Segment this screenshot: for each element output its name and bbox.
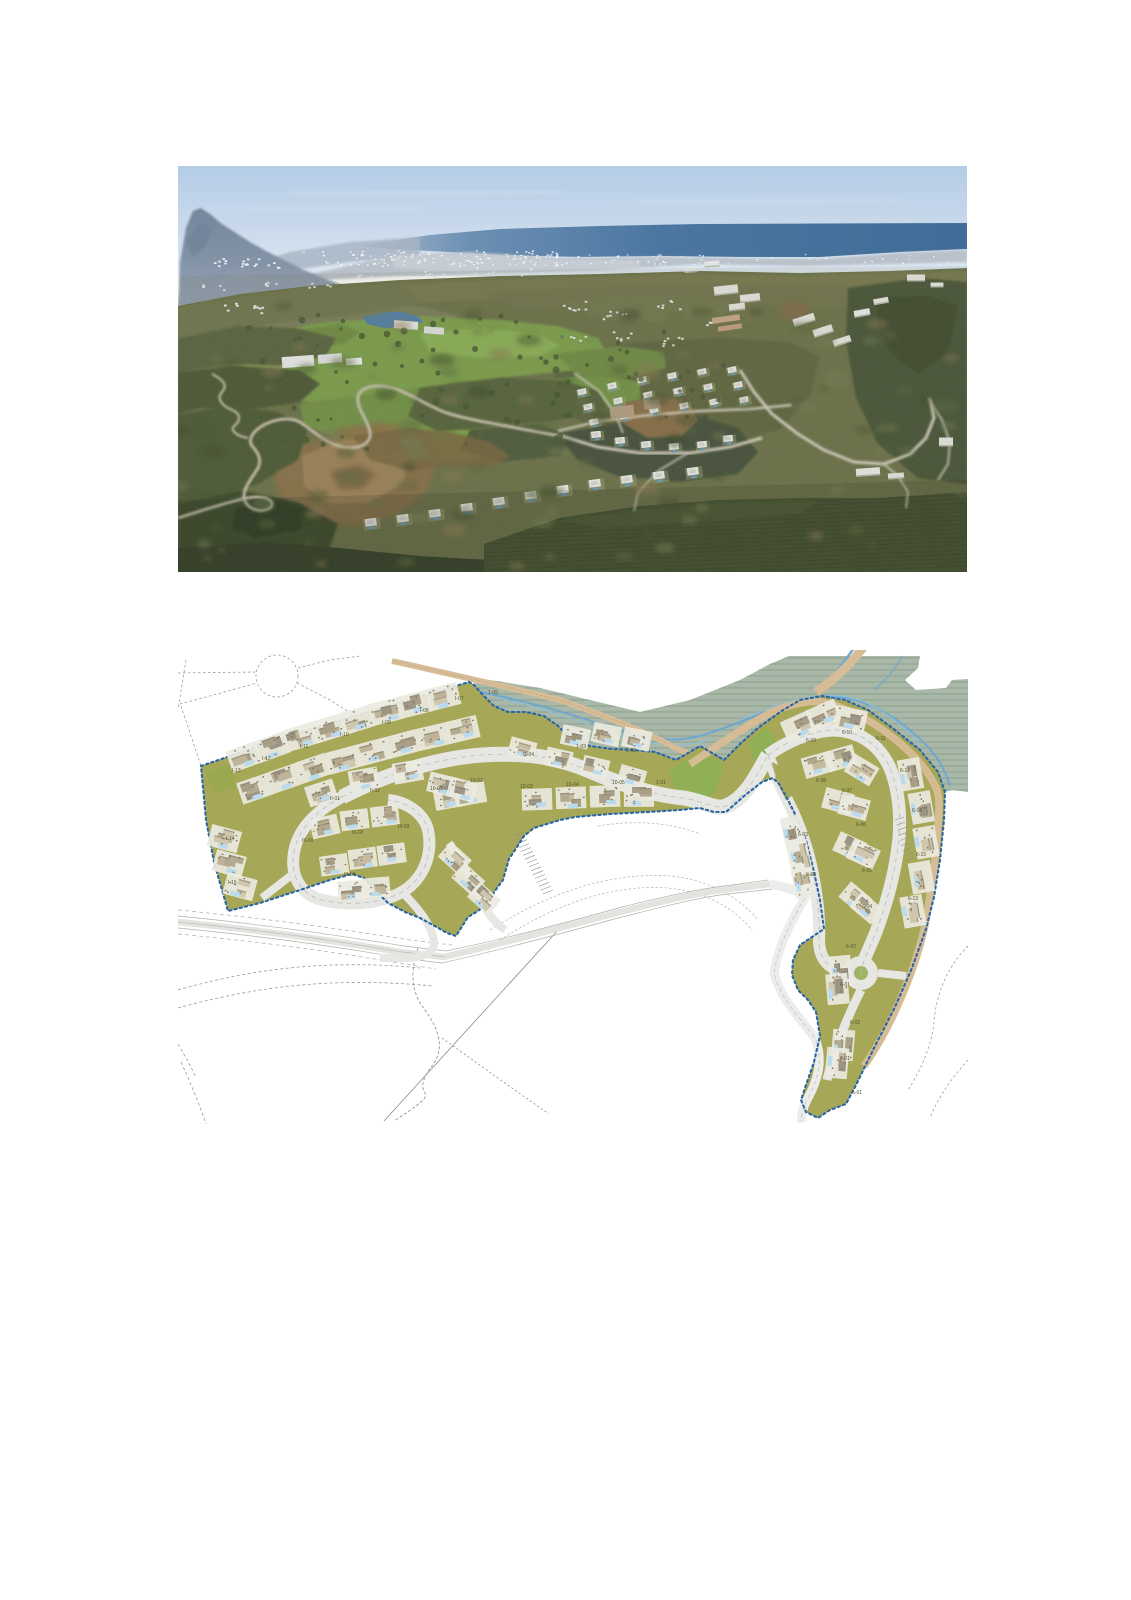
svg-text:III-01: III-01 [302,838,314,844]
svg-text:III-04: III-04 [344,872,356,878]
svg-text:6-04: 6-04 [862,904,872,910]
svg-text:1-02: 1-02 [626,748,636,754]
svg-text:I-09: I-09 [382,720,391,726]
svg-text:III-02: III-02 [352,830,364,836]
svg-text:10-03: 10-03 [520,784,533,790]
svg-text:I-08: I-08 [420,708,429,714]
svg-text:I-14: I-14 [226,836,235,842]
svg-text:6-08: 6-08 [816,778,826,784]
svg-text:II-02: II-02 [370,788,380,794]
svg-text:I-10: I-10 [340,732,349,738]
svg-text:6-11: 6-11 [876,736,886,742]
svg-text:6-09: 6-09 [806,738,816,744]
svg-text:6-12: 6-12 [900,768,910,774]
svg-text:1-04: 1-04 [524,752,534,758]
svg-text:1-05: 1-05 [488,690,498,696]
svg-text:10-05: 10-05 [612,780,625,786]
svg-text:6-02: 6-02 [850,1020,860,1026]
svg-text:III-03: III-03 [398,824,410,830]
svg-text:6-01: 6-01 [840,982,850,988]
svg-text:II-03: II-03 [806,872,816,878]
svg-text:I-12: I-12 [262,756,271,762]
svg-text:6-03: 6-03 [798,832,808,838]
svg-text:6-06: 6-06 [856,822,866,828]
svg-text:6-07: 6-07 [842,788,852,794]
svg-text:6-01: 6-01 [852,1090,862,1096]
svg-text:10-01: 10-01 [430,786,443,792]
svg-text:6-13: 6-13 [908,896,918,902]
svg-text:1-01: 1-01 [656,780,666,786]
svg-text:I-13: I-13 [232,768,241,774]
svg-text:6-10: 6-10 [842,730,852,736]
svg-text:II-01: II-01 [330,796,340,802]
svg-text:I-11: I-11 [300,744,308,750]
svg-text:6-05: 6-05 [862,868,872,874]
svg-text:6-14: 6-14 [912,808,922,814]
svg-text:6-01: 6-01 [840,1056,850,1062]
svg-text:10-02: 10-02 [470,778,483,784]
svg-text:6-15: 6-15 [916,852,926,858]
svg-text:I-15: I-15 [228,880,237,886]
svg-text:1-03: 1-03 [576,744,586,750]
svg-text:I-07: I-07 [455,696,464,702]
svg-text:6-02: 6-02 [846,944,856,950]
svg-text:10-04: 10-04 [566,782,579,788]
